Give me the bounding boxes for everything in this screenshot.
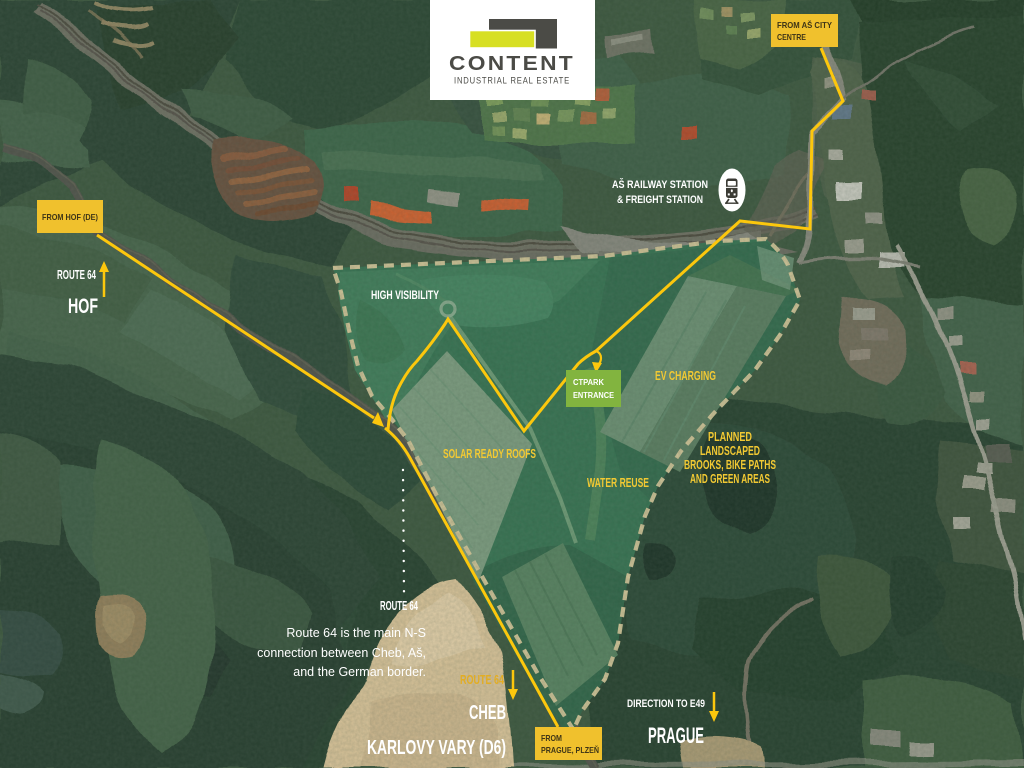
svg-text:ROUTE 64: ROUTE 64 (57, 267, 96, 282)
svg-text:EV CHARGING: EV CHARGING (655, 368, 716, 383)
svg-text:AND GREEN AREAS: AND GREEN AREAS (690, 471, 770, 486)
svg-text:WATER REUSE: WATER REUSE (587, 475, 649, 490)
svg-text:PLANNED: PLANNED (708, 429, 752, 444)
svg-text:HIGH VISIBILITY: HIGH VISIBILITY (371, 288, 439, 302)
svg-text:AŠ RAILWAY STATION: AŠ RAILWAY STATION (612, 178, 708, 191)
svg-text:CENTRE: CENTRE (777, 32, 806, 42)
svg-text:& FREIGHT STATION: & FREIGHT STATION (617, 194, 703, 206)
svg-text:ROUTE 64: ROUTE 64 (460, 672, 505, 687)
svg-text:PRAGUE: PRAGUE (648, 723, 704, 748)
svg-text:ROUTE 64: ROUTE 64 (380, 598, 418, 613)
svg-text:CONTENT: CONTENT (449, 53, 575, 75)
svg-text:FROM: FROM (541, 733, 562, 743)
svg-text:Route 64 is the main N-S: Route 64 is the main N-S (286, 626, 426, 640)
svg-text:LANDSCAPED: LANDSCAPED (700, 443, 760, 458)
svg-text:HOF: HOF (68, 295, 98, 318)
svg-text:FROM HOF (DE): FROM HOF (DE) (42, 212, 98, 222)
svg-text:PRAGUE, PLZEŇ: PRAGUE, PLZEŇ (541, 744, 599, 755)
svg-text:INDUSTRIAL REAL ESTATE: INDUSTRIAL REAL ESTATE (454, 76, 570, 86)
svg-text:ENTRANCE: ENTRANCE (573, 391, 615, 400)
svg-text:DIRECTION TO E49: DIRECTION TO E49 (627, 698, 705, 710)
svg-text:CTPARK: CTPARK (573, 378, 604, 387)
svg-text:and the German border.: and the German border. (293, 665, 426, 679)
svg-text:FROM AŠ CITY: FROM AŠ CITY (777, 19, 832, 30)
svg-text:BROOKS, BIKE PATHS: BROOKS, BIKE PATHS (684, 457, 776, 472)
svg-text:connection between Cheb, Aš,: connection between Cheb, Aš, (257, 646, 426, 660)
svg-text:SOLAR READY ROOFS: SOLAR READY ROOFS (443, 446, 536, 461)
svg-text:CHEB: CHEB (469, 702, 506, 724)
svg-text:KARLOVY VARY (D6): KARLOVY VARY (D6) (367, 737, 506, 759)
